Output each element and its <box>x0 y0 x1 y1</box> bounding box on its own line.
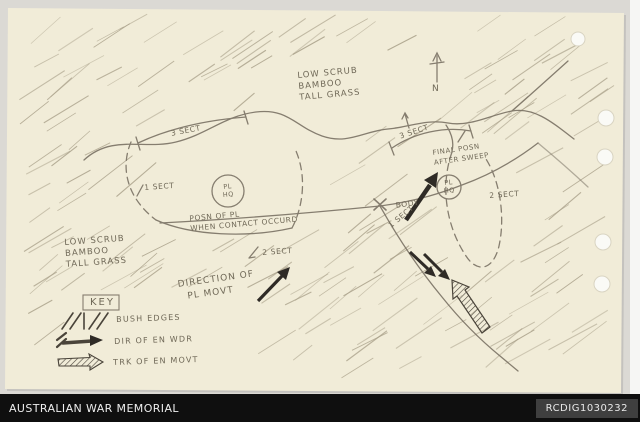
key-title: KEY <box>90 297 115 308</box>
vegetation-note-left: LOW SCRUB BAMBOO TALL GRASS <box>64 234 127 271</box>
hq-line: HQ <box>223 191 235 199</box>
pl-hq-start-label: PL HQ <box>222 183 234 199</box>
scanned-sketch-map-page: LOW SCRUB BAMBOO TALL GRASS LOW SCRUB BA… <box>0 0 640 422</box>
sketch-map-drawing <box>0 0 640 422</box>
catalogue-id-badge: RCDIG1030232 <box>536 399 638 418</box>
key-item-bush-edges: BUSH EDGES <box>116 312 181 325</box>
sect1-left-label: 1 SECT <box>144 180 175 193</box>
catalogue-bar: AUSTRALIAN WAR MEMORIAL RCDIG1030232 <box>0 394 640 422</box>
sect2-left-label: 2 SECT <box>262 245 293 258</box>
hq-line: HQ <box>444 187 456 195</box>
vegetation-note-top: LOW SCRUB BAMBOO TALL GRASS <box>297 66 361 104</box>
scan-margin <box>630 0 640 422</box>
paper-sheet <box>5 8 624 393</box>
archive-title: AUSTRALIAN WAR MEMORIAL <box>9 402 179 415</box>
pl-hq-final-label: PL HQ <box>443 179 455 195</box>
sect2-right-label: 2 SECT <box>489 188 520 201</box>
north-label: N <box>432 84 440 95</box>
